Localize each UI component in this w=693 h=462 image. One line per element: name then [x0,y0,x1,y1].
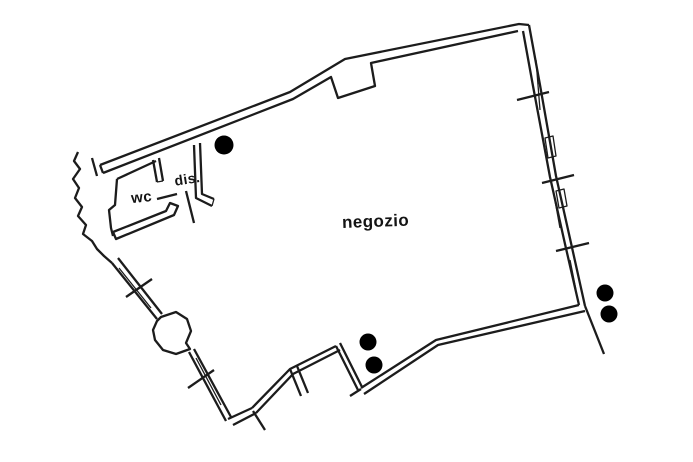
right-wall-outer-line [529,25,585,306]
window-tick-1 [517,92,549,100]
floor-plan: negozio wc dis. [0,0,693,462]
wc-north-wall-line [117,161,156,179]
left-window-wall [112,258,231,421]
wc-dis-rooms [109,143,214,239]
corner-stub-line [253,411,265,430]
bottom-right-wall-outer-line [364,311,585,394]
left-wall-outer-lower-line [189,352,226,421]
left-wall-inner-lower-line [194,349,231,417]
room-labels: negozio wc dis. [129,169,409,232]
dis-east-wall-line-2 [200,143,214,199]
bottom-right-wall [350,305,585,396]
bottom-right-wall-end-tail [350,389,361,396]
column-marker-2 [360,334,377,351]
column-marker-3 [366,357,383,374]
boundary-cap-line [92,158,97,176]
top-wall [100,24,529,179]
wc-dis-partition-line-2 [159,158,163,181]
room-label-negozio: negozio [342,211,410,232]
step-wall-line-1 [336,346,358,390]
jagged-boundary-line [73,152,112,263]
column-marker-5 [601,306,618,323]
step-wall-line-2 [340,343,362,387]
pillar-outline [153,312,191,354]
room-label-wc: wc [129,188,152,207]
dis-east-wall-cap [212,199,214,206]
wc-door-line [157,194,177,199]
top-wall-left-cap [100,165,103,173]
wc-south-wall-outline [113,203,178,239]
top-wall-inner-line-with-niche [103,31,518,173]
top-wall-outer-line [100,24,529,165]
bottom-left-wall [228,346,340,430]
wc-west-wall-line [109,179,117,236]
column-markers [215,136,618,374]
column-marker-4 [597,285,614,302]
wc-dis-partition-line-1 [153,160,157,182]
column-marker-1 [215,136,234,155]
floor-plan-drawing: negozio wc dis. [0,0,693,462]
left-glazing-line-2 [196,358,221,405]
left-glazing-line-1 [119,268,151,308]
dis-door-line [186,191,194,223]
left-jagged-boundary [73,152,112,263]
right-window-wall [517,25,604,354]
bottom-left-wall-lower-line [256,350,340,413]
room-label-dis: dis. [173,169,201,189]
